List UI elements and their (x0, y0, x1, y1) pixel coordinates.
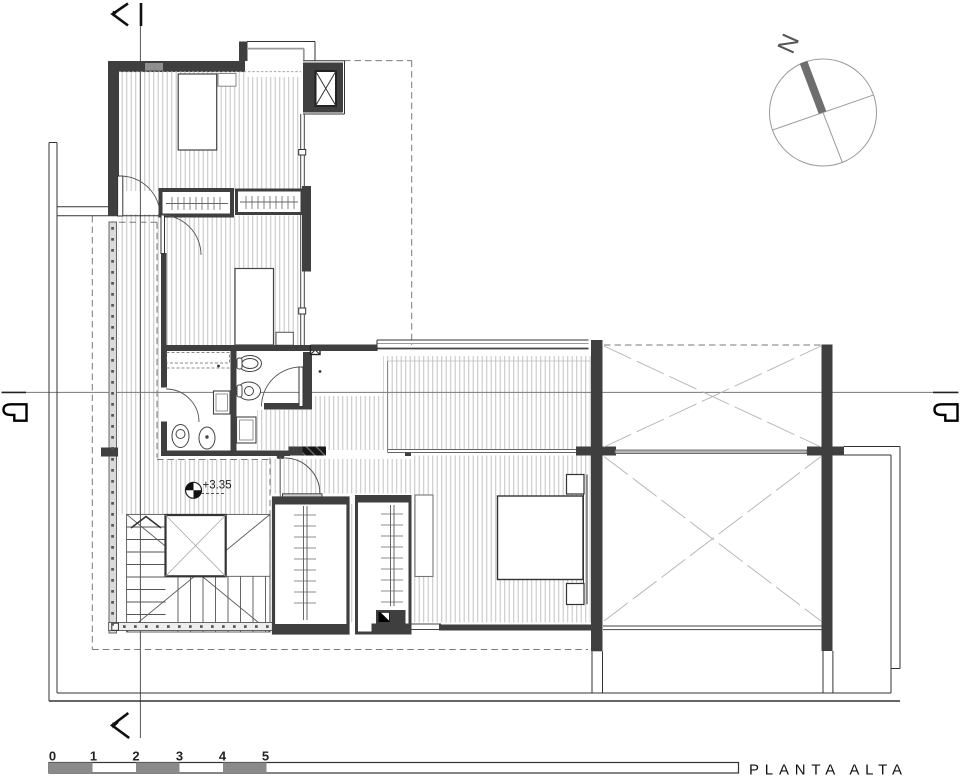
svg-text:PLANTA ALTA: PLANTA ALTA (749, 762, 908, 776)
svg-text:3: 3 (176, 749, 183, 764)
svg-text:0: 0 (49, 749, 56, 764)
svg-text:1: 1 (90, 749, 97, 764)
svg-text:5: 5 (262, 749, 269, 764)
svg-text:4: 4 (219, 749, 227, 764)
svg-text:+3.35: +3.35 (203, 480, 232, 492)
svg-text:2: 2 (132, 749, 139, 764)
